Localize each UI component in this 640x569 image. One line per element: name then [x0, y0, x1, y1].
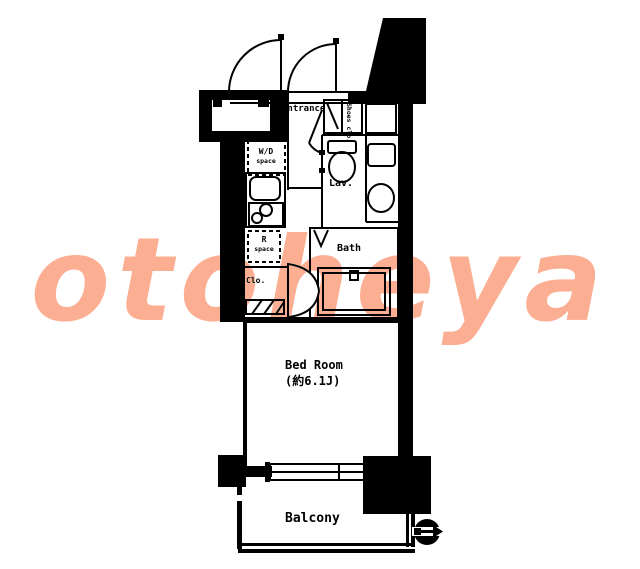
vanity-cabinet-icon	[368, 144, 395, 166]
refrigerator-label-top: R	[262, 235, 267, 244]
shoes-closet-label: Shoes clo.	[344, 103, 352, 142]
bath-label: Bath	[337, 243, 361, 255]
floorplan-drawing	[0, 0, 640, 569]
washer-dryer-label-sub: space	[256, 157, 276, 165]
bedroom-name: Bed Room	[285, 358, 343, 372]
closet-area	[245, 267, 287, 314]
meter-box	[212, 100, 270, 131]
bedroom-label: Bed Room(約6.1J)	[285, 357, 343, 389]
refrigerator-label-sub: space	[254, 245, 274, 253]
balcony-bottom-wall-a	[238, 543, 415, 546]
balcony-right-wall-a	[406, 514, 409, 547]
bedroom-left-wall	[243, 318, 247, 466]
washer-dryer-label-top: W/D	[259, 147, 273, 156]
kitchen-sink-icon	[250, 177, 280, 200]
top-right-pillar	[348, 18, 426, 104]
washer-dryer-label: W/Dspace	[246, 147, 286, 166]
lavatory-label: Lav.	[329, 178, 353, 190]
bathtub-icon	[318, 268, 390, 315]
floorplan-page: Entrance Shoes clo. Lav. Bath W/Dspace R…	[0, 0, 640, 569]
closet-label: Clo.	[246, 276, 265, 286]
compass-icon	[412, 519, 443, 545]
bedroom-size: (約6.1J)	[285, 374, 340, 388]
entrance-hall	[288, 104, 322, 190]
balcony-bottom-wall-b	[238, 549, 415, 553]
balcony-left-wall-a	[237, 487, 242, 495]
entrance-label: Entrance	[282, 104, 325, 115]
storage-cabinet	[366, 104, 396, 133]
right-wall	[398, 104, 413, 460]
shoe-closet	[324, 100, 362, 133]
left-wall	[220, 140, 245, 322]
bedroom-door-arc	[288, 264, 319, 317]
balcony-left-wall-b	[237, 501, 242, 549]
bottom-left-pillar	[218, 455, 246, 487]
washbasin-area	[366, 144, 398, 222]
balcony-label: Balcony	[285, 511, 340, 527]
washbasin-icon	[368, 184, 394, 212]
entrance-door-arcs	[229, 34, 348, 103]
refrigerator-label: Rspace	[246, 235, 282, 254]
